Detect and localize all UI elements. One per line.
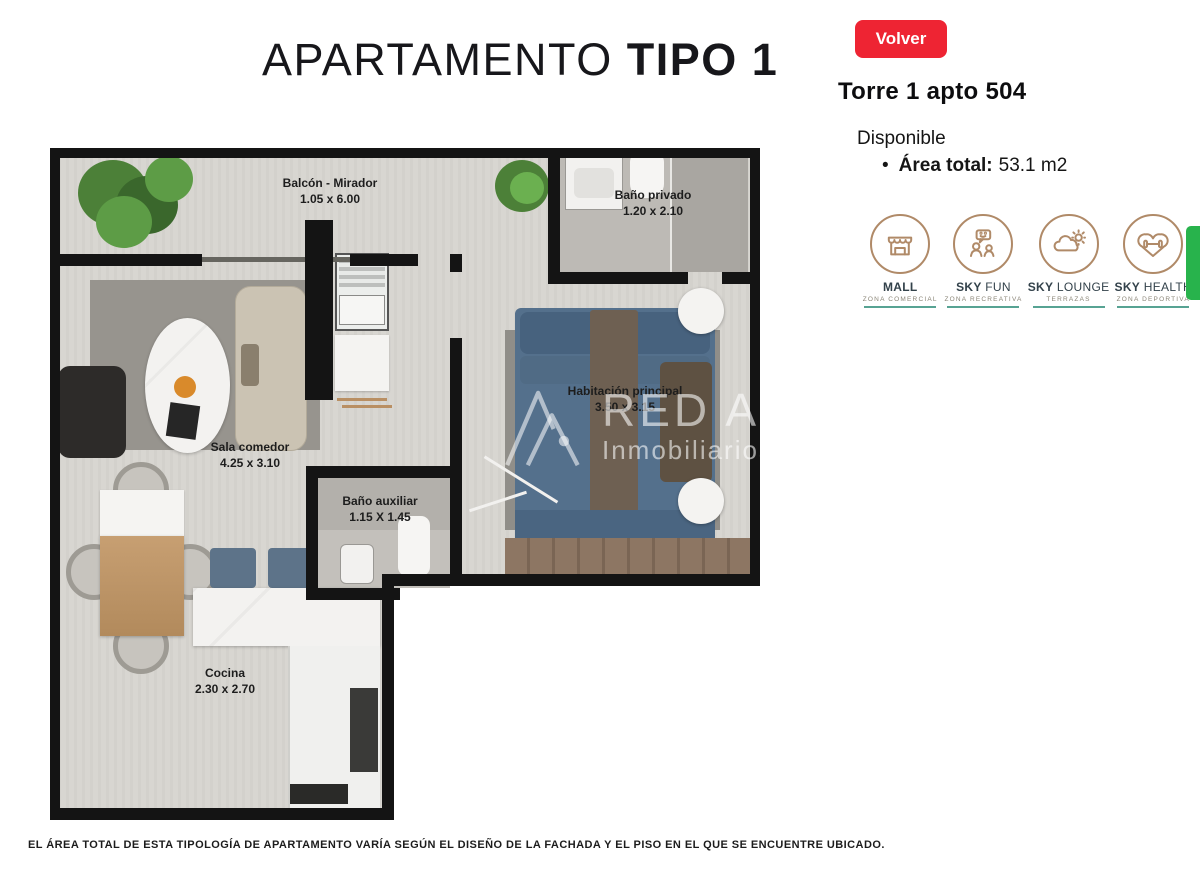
- amenity-circle: [953, 214, 1013, 274]
- amenity-underline: [864, 306, 936, 308]
- wall: [50, 808, 394, 820]
- wall: [350, 254, 418, 266]
- room-dims: 1.20 x 2.10: [598, 204, 708, 220]
- plant: [510, 172, 544, 204]
- disclaimer-text: EL ÁREA TOTAL DE ESTA TIPOLOGÍA DE APART…: [28, 839, 885, 851]
- room-dims: 3.50 x 3.15: [525, 400, 725, 416]
- bullet: •: [882, 155, 889, 176]
- page: APARTAMENTO TIPO 1 Volver Torre 1 apto 5…: [0, 0, 1200, 880]
- room-label-sala: Sala comedor 4.25 x 3.10: [160, 440, 340, 471]
- table-tray: [166, 402, 200, 440]
- floorplan: Balcón - Mirador 1.05 x 6.00 Baño privad…: [50, 148, 760, 820]
- area-value: 53.1 m2: [999, 155, 1068, 176]
- room-label-habitacion: Habitación principal 3.50 x 3.15: [525, 384, 725, 415]
- chat-widget-tab[interactable]: [1186, 226, 1200, 300]
- room-dims: 4.25 x 3.10: [160, 456, 340, 472]
- back-button[interactable]: Volver: [855, 20, 947, 58]
- dining-table-top: [100, 490, 184, 536]
- dining-table: [100, 536, 184, 636]
- wall: [306, 466, 318, 600]
- fruit-bowl: [174, 376, 196, 398]
- room-dims: 1.05 x 6.00: [230, 192, 430, 208]
- amenity-sky-fun: SKY FUN ZONA RECREATIVA: [944, 214, 1022, 308]
- wall: [382, 574, 394, 820]
- bed-side-pillow: [660, 362, 712, 482]
- amenity-circle: [1123, 214, 1183, 274]
- amenity-label: SKY FUN: [956, 280, 1011, 294]
- amenity-sublabel: ZONA COMERCIAL: [863, 296, 938, 303]
- storefront-icon: [880, 224, 920, 264]
- room-name: Habitación principal: [525, 384, 725, 400]
- amenity-sublabel: ZONA RECREATIVA: [944, 296, 1022, 303]
- bedroom-closet: [505, 538, 755, 574]
- armchair: [58, 366, 126, 458]
- sofa-pillow: [241, 344, 259, 386]
- wall: [306, 588, 400, 600]
- room-name: Cocina: [150, 666, 300, 682]
- amenity-mall: MALL ZONA COMERCIAL: [862, 214, 938, 308]
- amenity-underline: [1117, 306, 1189, 308]
- amenity-sublabel: TERRAZAS: [1046, 296, 1090, 303]
- amenity-label: MALL: [883, 280, 918, 294]
- room-name: Baño auxiliar: [338, 494, 422, 510]
- wall: [722, 272, 760, 284]
- room-label-bano-privado: Baño privado 1.20 x 2.10: [598, 188, 708, 219]
- amenity-circle: [1039, 214, 1099, 274]
- room-label-bano-auxiliar: Baño auxiliar 1.15 X 1.45: [338, 494, 422, 525]
- console-shelf: [342, 405, 392, 408]
- room-name: Balcón - Mirador: [230, 176, 430, 192]
- wall: [50, 148, 760, 158]
- bar-stool: [210, 548, 256, 588]
- console-shelf: [337, 398, 387, 401]
- title-bold: TIPO 1: [627, 34, 779, 85]
- wall: [750, 148, 760, 586]
- room-label-cocina: Cocina 2.30 x 2.70: [150, 666, 300, 697]
- amenity-underline: [1033, 306, 1105, 308]
- plant: [96, 196, 152, 248]
- wall: [548, 272, 688, 284]
- kitchen-sink-dark: [290, 784, 348, 804]
- room-dims: 2.30 x 2.70: [150, 682, 300, 698]
- wall: [450, 338, 462, 586]
- room-name: Baño privado: [598, 188, 708, 204]
- aux-bath-sink: [340, 544, 374, 584]
- page-title: APARTAMENTO TIPO 1: [262, 34, 778, 86]
- nightstand: [678, 288, 724, 334]
- room-label-balcon: Balcón - Mirador 1.05 x 6.00: [230, 176, 430, 207]
- heart-dumbbell-icon: [1133, 224, 1173, 264]
- people-chat-icon: [963, 224, 1003, 264]
- room-name: Sala comedor: [160, 440, 340, 456]
- title-light: APARTAMENTO: [262, 34, 613, 85]
- room-dims: 1.15 X 1.45: [338, 510, 422, 526]
- wall: [450, 254, 462, 272]
- amenity-sky-lounge: SKY LOUNGE TERRAZAS: [1029, 214, 1109, 308]
- amenity-sky-health: SKY HEALTH ZONA DEPORTIVA: [1115, 214, 1192, 308]
- amenities-row: MALL ZONA COMERCIAL SKY FUN ZONA RECREAT…: [862, 214, 1192, 308]
- kitchen-appliance-dark: [350, 688, 378, 772]
- wall: [50, 148, 60, 820]
- area-total-line: •Área total:53.1 m2: [882, 155, 1067, 177]
- availability-status: Disponible: [857, 128, 946, 150]
- wall: [548, 148, 560, 284]
- unit-title: Torre 1 apto 504: [838, 78, 1026, 106]
- amenity-label: SKY LOUNGE: [1028, 280, 1110, 294]
- wall: [382, 574, 760, 586]
- appliance-cabinet: [335, 335, 389, 391]
- amenity-circle: [870, 214, 930, 274]
- amenity-label: SKY HEALTH: [1115, 280, 1192, 294]
- plant: [145, 156, 193, 202]
- nightstand: [678, 478, 724, 524]
- wall-column: [305, 220, 333, 400]
- wall: [60, 254, 202, 266]
- cloud-sun-icon: [1049, 224, 1089, 264]
- amenity-underline: [947, 306, 1019, 308]
- area-label: Área total:: [899, 155, 993, 176]
- appliance-oven: [339, 295, 385, 325]
- amenity-sublabel: ZONA DEPORTIVA: [1117, 296, 1190, 303]
